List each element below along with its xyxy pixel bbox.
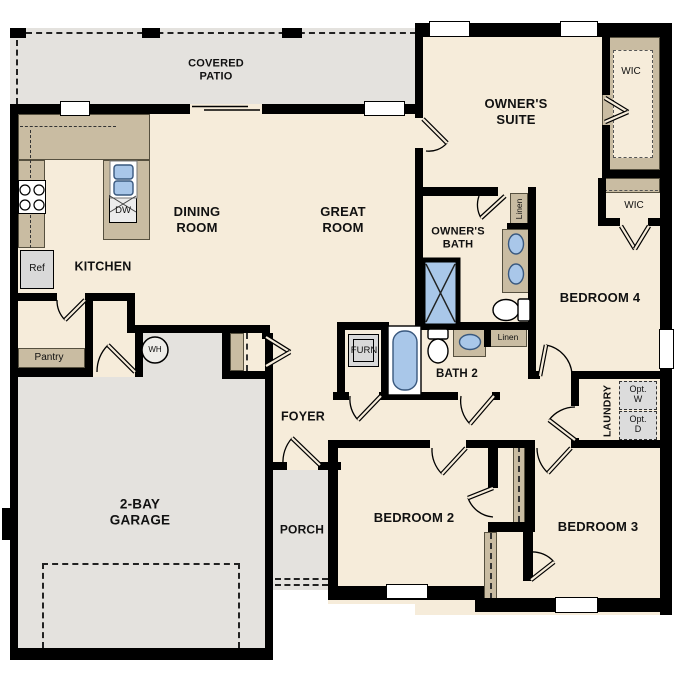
- garage-door-outline: [42, 563, 240, 648]
- wall: [262, 327, 270, 339]
- wall: [488, 522, 535, 532]
- room-label-bedroom3: BEDROOM 3: [558, 519, 639, 535]
- bedroom3-closet-rod: [490, 533, 492, 599]
- wall: [2, 508, 10, 540]
- wall: [602, 37, 610, 95]
- wall: [337, 322, 345, 400]
- label-linen-owners: Linen: [514, 199, 524, 220]
- wall: [265, 462, 287, 470]
- label-water-heater: WH: [148, 345, 161, 355]
- wall: [222, 371, 273, 379]
- wall: [523, 532, 533, 581]
- room-label-wic-bed4: WIC: [624, 200, 643, 212]
- room-label-dining: DINING ROOM: [174, 204, 221, 236]
- wall: [222, 327, 230, 377]
- wall: [507, 223, 531, 229]
- label-linen-hall: Linen: [498, 332, 519, 342]
- patio-edge-dashed-left: [16, 40, 18, 104]
- wall: [528, 187, 536, 379]
- wall: [18, 368, 93, 377]
- wall: [10, 648, 272, 660]
- wall: [484, 325, 491, 347]
- bedroom2-closet-rod: [518, 446, 520, 522]
- patio-post: [282, 28, 302, 38]
- wall: [415, 322, 536, 330]
- patio-post: [10, 28, 26, 38]
- window: [429, 21, 470, 37]
- kitchen-counter-top: [18, 114, 150, 160]
- wall: [602, 125, 610, 170]
- patio-edge-dashed-top: [26, 32, 416, 34]
- wall: [571, 379, 579, 406]
- label-opt-dryer: Opt. D: [629, 415, 646, 435]
- window: [560, 21, 598, 37]
- room-label-kitchen: KITCHEN: [75, 259, 132, 274]
- wall: [571, 371, 672, 379]
- room-label-covered-patio: COVERED PATIO: [188, 58, 244, 85]
- wall: [328, 440, 338, 600]
- wall: [423, 187, 498, 196]
- room-label-porch: PORCH: [280, 523, 324, 538]
- wall: [528, 371, 540, 379]
- room-label-bath2: BATH 2: [436, 367, 478, 381]
- label-refrigerator: Ref: [29, 263, 45, 275]
- wall: [381, 322, 389, 400]
- range-stove: [18, 180, 46, 214]
- patio-post: [142, 28, 160, 38]
- sliding-door-opening: [190, 104, 262, 114]
- upper-cabinets-dashed: [20, 126, 116, 127]
- window: [555, 597, 598, 613]
- label-opt-washer: Opt. W: [629, 385, 646, 405]
- wall: [127, 293, 135, 333]
- window: [60, 101, 90, 116]
- porch-step-line1: [275, 578, 328, 580]
- wall: [488, 444, 498, 488]
- wall: [333, 392, 349, 400]
- window: [364, 101, 405, 116]
- window: [386, 584, 428, 599]
- room-label-garage: 2-BAY GARAGE: [110, 497, 170, 530]
- garage-nook-slab: [135, 333, 230, 377]
- wic-bed4-rod-dashed: [604, 190, 658, 191]
- wall: [415, 23, 423, 118]
- wall: [492, 392, 500, 400]
- wall: [415, 148, 423, 330]
- owners-bath-vanity: [502, 229, 529, 293]
- wall: [127, 325, 270, 333]
- wall: [660, 23, 672, 615]
- porch-step-line2: [275, 584, 328, 586]
- wall: [265, 333, 273, 660]
- coat-closet-shelf: [230, 333, 244, 371]
- wall: [379, 392, 458, 400]
- bath2-vanity: [453, 328, 486, 357]
- label-pantry: Pantry: [35, 352, 64, 364]
- room-label-owners-suite: OWNER'S SUITE: [485, 96, 548, 128]
- label-furnace: FURN: [351, 345, 377, 357]
- wall: [648, 218, 660, 226]
- wall: [85, 293, 93, 377]
- window: [659, 329, 674, 369]
- room-label-bedroom2: BEDROOM 2: [374, 510, 455, 526]
- room-label-owners-bath: OWNER'S BATH: [431, 226, 485, 253]
- wall: [337, 322, 389, 330]
- wall: [571, 440, 672, 448]
- room-label-great: GREAT ROOM: [320, 204, 366, 236]
- room-label-foyer: FOYER: [281, 409, 325, 424]
- wall: [598, 218, 620, 226]
- wall: [328, 440, 430, 448]
- floor-plan: COVERED PATIO OWNER'S SUITE WIC WIC DINI…: [0, 0, 687, 687]
- room-label-wic-owners: WIC: [621, 66, 640, 78]
- wall: [135, 327, 143, 377]
- wall: [18, 293, 57, 301]
- wall: [10, 104, 18, 660]
- label-dishwasher: DW: [115, 205, 131, 217]
- room-label-bedroom4: BEDROOM 4: [560, 290, 641, 306]
- coat-closet-door-dashed: [246, 333, 248, 371]
- wall: [602, 170, 672, 178]
- room-label-laundry: LAUNDRY: [602, 385, 615, 437]
- wall: [525, 444, 535, 523]
